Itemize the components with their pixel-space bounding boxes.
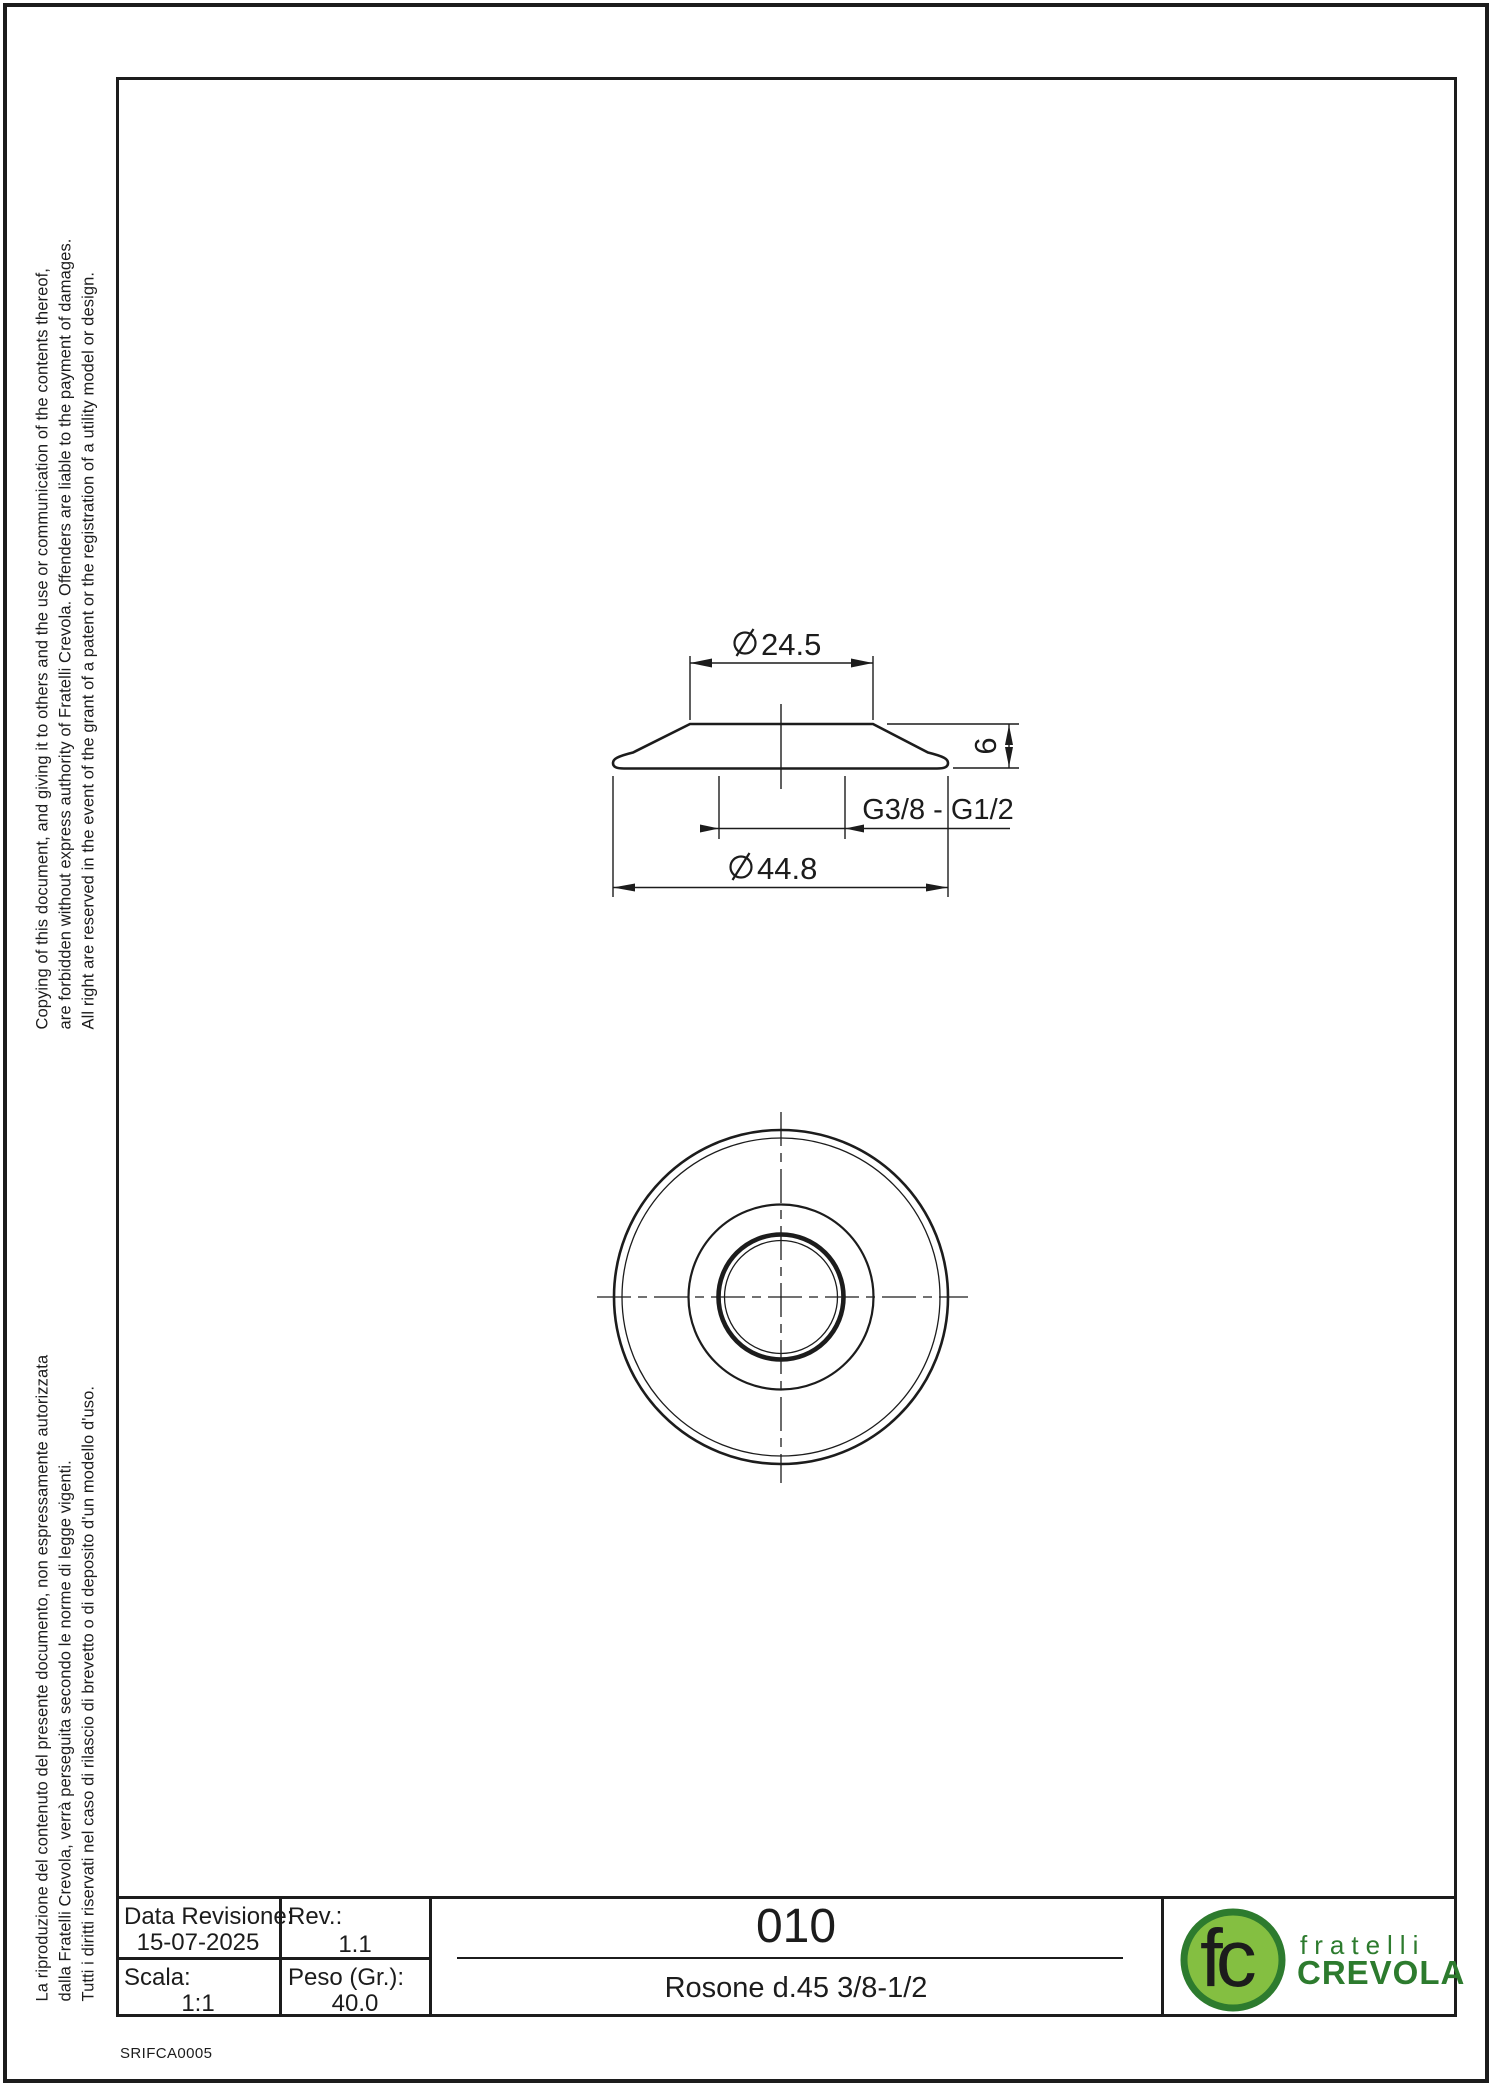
arrowhead (851, 659, 873, 668)
part-number: 010 (430, 1901, 1162, 1953)
arrowhead (1005, 747, 1013, 767)
peso-label: Peso (Gr.): (288, 1964, 404, 1992)
rev-value: 1.1 (280, 1931, 430, 1959)
part-description: Rosone d.45 3/8-1/2 (430, 1972, 1162, 2005)
drawing-canvas: 24.5 6 G3/8 - G1/2 (0, 0, 1500, 2097)
data-revisione-value: 15-07-2025 (116, 1929, 280, 1957)
front-view (597, 1112, 968, 1483)
dimension-thread-spec: G3/8 - G1/2 (700, 776, 1014, 839)
arrowhead (845, 825, 864, 833)
arrowhead (1005, 725, 1013, 745)
thread-spec-value: G3/8 - G1/2 (862, 794, 1014, 826)
arrowhead (700, 825, 719, 833)
diameter-symbol-icon (731, 853, 752, 880)
part-number-separator (457, 1957, 1123, 1959)
arrowhead (690, 659, 712, 668)
scala-value: 1:1 (116, 1990, 280, 2018)
arrowhead (926, 884, 948, 892)
logo-monogram: fc (1200, 1913, 1255, 2004)
side-view (613, 704, 948, 789)
peso-value: 40.0 (280, 1990, 430, 2018)
logo-name-line2: CREVOLA (1297, 1954, 1465, 1992)
data-revisione-label: Data Revisione: (124, 1903, 293, 1931)
top-diameter-value: 24.5 (761, 627, 821, 662)
bottom-diameter-value: 44.8 (757, 851, 817, 886)
technical-drawing-sheet: { "colors": { "ink": "#1c1c1c", "backgro… (0, 0, 1500, 2097)
fc-logo-icon: fc (1180, 1908, 1288, 2014)
arrowhead (613, 884, 635, 892)
document-code: SRIFCA0005 (120, 2045, 212, 2062)
height-value: 6 (968, 737, 1003, 754)
scala-label: Scala: (124, 1964, 191, 1992)
rev-label: Rev.: (288, 1903, 342, 1931)
diameter-symbol-icon (735, 629, 756, 656)
